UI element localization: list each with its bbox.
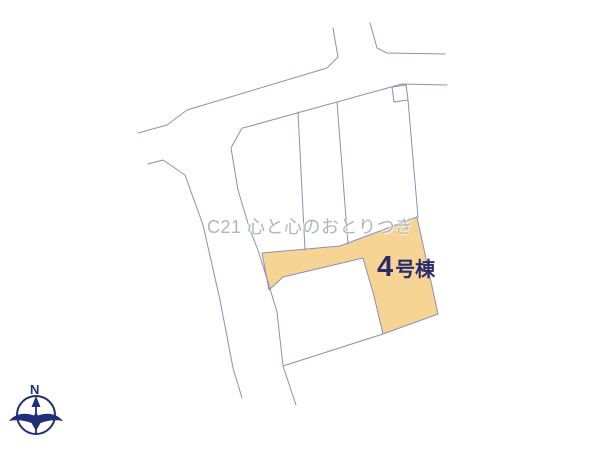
parcel-divider-3 <box>408 100 418 217</box>
parcel-label-number: 4 <box>377 253 393 282</box>
parcel-label-suffix: 号棟 <box>395 260 435 280</box>
site-plan-svg <box>0 0 600 450</box>
inner-parcel-bottom-edge <box>283 334 383 366</box>
compass-n-label: N <box>30 383 39 396</box>
street-left-lower-edge <box>148 160 242 398</box>
compass-arrowhead <box>32 396 41 407</box>
survey-marker-square <box>392 85 408 102</box>
compass-north-icon <box>9 396 63 434</box>
street-upper-left-edge <box>138 28 338 133</box>
street-upper-right-edge <box>370 23 445 54</box>
parcel-label: 4 号棟 <box>377 253 435 282</box>
parcel-divider-1 <box>298 112 305 250</box>
parcel-lines-group <box>138 23 447 405</box>
site-plan: C21 心と心のおとりつぎ 4 号棟 N <box>0 0 600 450</box>
parcel-divider-2 <box>337 102 348 244</box>
road-lower-edge <box>243 84 447 128</box>
